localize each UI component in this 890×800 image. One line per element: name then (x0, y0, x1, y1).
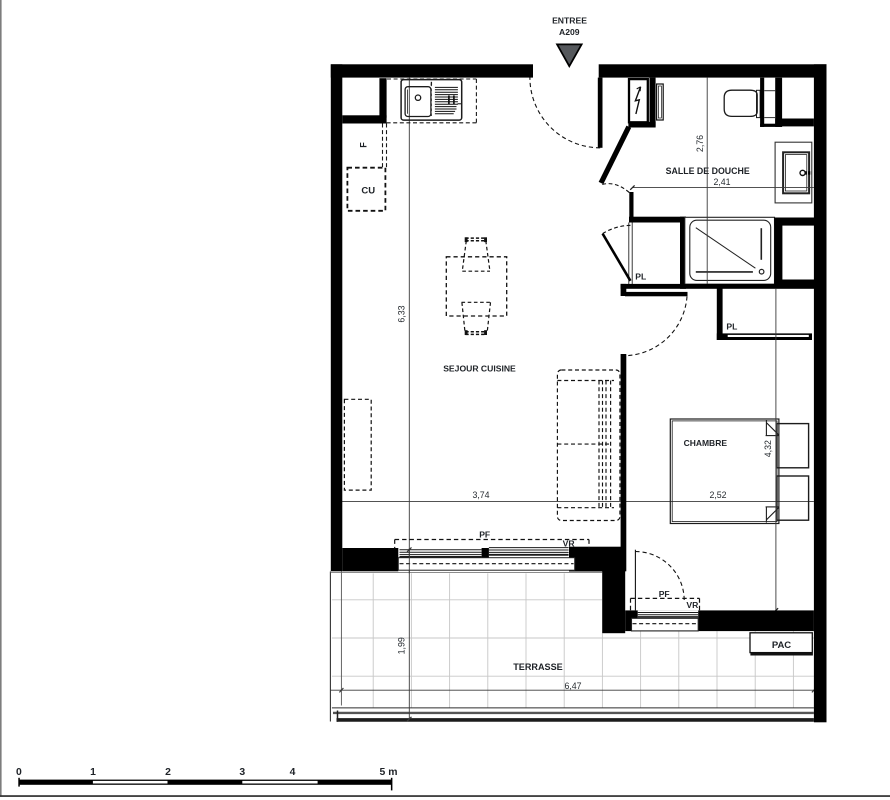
svg-text:SALLE DE DOUCHE: SALLE DE DOUCHE (666, 166, 750, 176)
svg-text:1,99: 1,99 (397, 637, 407, 654)
svg-text:2,76: 2,76 (695, 135, 705, 152)
svg-text:VR: VR (563, 539, 576, 549)
svg-text:3: 3 (239, 767, 245, 778)
svg-text:PF: PF (659, 589, 670, 599)
svg-text:CU: CU (361, 186, 375, 197)
svg-text:3,74: 3,74 (472, 490, 489, 500)
svg-text:PAC: PAC (772, 640, 791, 651)
svg-text:4: 4 (290, 767, 296, 778)
svg-text:CHAMBRE: CHAMBRE (684, 438, 728, 448)
svg-text:2: 2 (165, 767, 171, 778)
svg-text:2,52: 2,52 (709, 490, 726, 500)
svg-text:PF: PF (479, 530, 490, 540)
svg-text:1: 1 (90, 767, 96, 778)
svg-text:6,33: 6,33 (396, 305, 406, 322)
svg-text:A209: A209 (559, 27, 580, 37)
svg-text:0: 0 (16, 767, 22, 778)
svg-text:SEJOUR CUISINE: SEJOUR CUISINE (443, 364, 516, 374)
svg-text:4,32: 4,32 (763, 440, 773, 457)
svg-text:2,41: 2,41 (713, 177, 730, 187)
svg-text:ENTREE: ENTREE (552, 16, 587, 26)
svg-text:F: F (358, 142, 368, 148)
svg-text:PL: PL (726, 322, 737, 332)
svg-text:5 m: 5 m (380, 767, 398, 778)
svg-text:TERRASSE: TERRASSE (513, 662, 563, 672)
svg-text:VR: VR (686, 600, 699, 610)
svg-text:6,47: 6,47 (564, 681, 581, 691)
svg-text:PL: PL (635, 272, 646, 282)
